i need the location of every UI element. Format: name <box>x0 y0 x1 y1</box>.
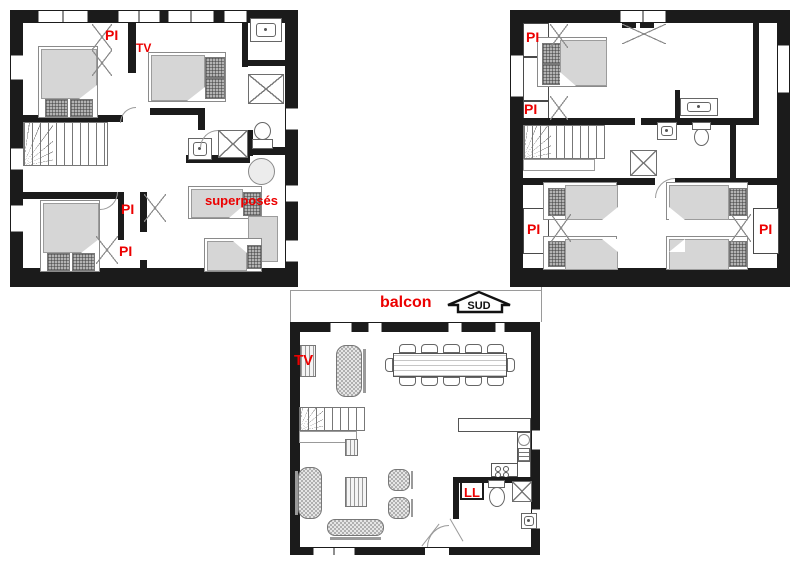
folding-door-icon <box>551 214 571 242</box>
sofa <box>336 345 362 397</box>
floorplan-canvas: PI TV PI PI superposés <box>0 0 800 566</box>
chair <box>399 344 416 353</box>
armchair <box>388 497 410 519</box>
sofa <box>298 467 322 519</box>
washbasin <box>657 122 677 140</box>
window <box>495 323 505 332</box>
stair-landing <box>523 159 595 171</box>
closet-label: PI <box>119 244 132 258</box>
pillow <box>729 188 747 216</box>
mattress <box>565 185 618 220</box>
tv-label: TV <box>294 353 313 368</box>
stair-winder <box>523 125 551 159</box>
folding-door-icon <box>550 24 568 48</box>
toilet <box>487 480 505 506</box>
floor-plan-upper-right: PI PI PI PI <box>510 10 790 287</box>
south-direction-arrow: SUD <box>446 289 512 317</box>
wall <box>242 60 285 66</box>
sheet-fold <box>79 85 97 99</box>
kitchen-sink <box>518 434 530 446</box>
sofa-back <box>363 349 366 393</box>
sheet-fold <box>669 207 685 220</box>
entry-door-gap <box>425 548 449 555</box>
window <box>643 11 666 22</box>
window <box>168 11 191 22</box>
door-arc <box>120 107 136 123</box>
sheet-fold <box>233 241 247 253</box>
closet-label: PI <box>121 202 134 216</box>
wall <box>128 23 136 73</box>
window <box>778 45 789 93</box>
floor-plan-upper-left: PI TV PI PI superposés <box>10 10 298 287</box>
south-arrow-graphic: SUD <box>446 289 512 317</box>
wall <box>523 118 635 125</box>
toilet-bowl <box>254 122 271 140</box>
window <box>286 185 298 202</box>
chair <box>465 377 482 386</box>
bunk-bed-lower <box>204 238 262 272</box>
window <box>313 548 334 555</box>
chair <box>385 358 393 372</box>
mattress <box>207 241 247 271</box>
chair <box>487 377 504 386</box>
door-arc <box>200 130 218 148</box>
window <box>11 148 23 170</box>
double-bed <box>40 200 100 272</box>
tap <box>264 28 267 31</box>
washing-machine: LL <box>460 481 484 500</box>
stair-winder <box>23 122 53 166</box>
double-bed <box>148 52 226 102</box>
window <box>63 11 88 22</box>
armchair <box>388 469 410 491</box>
window <box>11 205 23 232</box>
svg-text:SUD: SUD <box>467 300 490 312</box>
shower <box>512 481 532 502</box>
sofa-back <box>295 471 298 515</box>
round-basin <box>248 158 275 185</box>
dish-drainer <box>518 448 530 462</box>
chair <box>421 344 438 353</box>
door-leaf <box>450 518 464 541</box>
tap <box>527 519 530 522</box>
wall <box>753 23 759 118</box>
toilet-tank <box>252 139 273 149</box>
window <box>330 323 352 332</box>
closet-label: PI <box>526 30 539 44</box>
floor-plan-ground: balcon SUD TV <box>290 287 542 555</box>
folding-door-icon <box>144 194 166 222</box>
wall <box>198 108 205 130</box>
stove <box>491 463 518 477</box>
toilet <box>692 122 710 146</box>
double-bed <box>38 46 98 118</box>
kitchen-counter <box>458 418 531 432</box>
wall <box>510 268 790 287</box>
balcony-label: balcon <box>380 295 432 311</box>
window <box>620 11 643 22</box>
armchair-back <box>411 499 413 517</box>
window <box>139 11 160 22</box>
sheet-fold <box>669 239 685 252</box>
pillow <box>47 253 70 271</box>
window <box>368 323 382 332</box>
door-arc <box>100 192 118 210</box>
bunk-beds-label: superposés <box>205 194 278 207</box>
window <box>334 548 355 555</box>
chair <box>443 344 460 353</box>
mattress <box>669 239 729 270</box>
window <box>118 11 139 22</box>
chair <box>465 344 482 353</box>
side-table <box>345 439 358 456</box>
folding-door-icon <box>550 96 568 120</box>
toilet-bowl <box>489 487 505 507</box>
window <box>286 108 298 130</box>
sheet-fold <box>560 72 576 86</box>
window <box>448 323 462 332</box>
sheet-fold <box>187 87 205 101</box>
chair <box>421 377 438 386</box>
pillow <box>542 64 561 85</box>
toilet-bowl <box>694 128 709 146</box>
closet-label: PI <box>524 102 537 116</box>
pillow <box>45 99 68 117</box>
mattress <box>43 203 99 253</box>
wall <box>140 260 147 268</box>
folding-door-icon <box>92 50 112 76</box>
door-arc <box>427 525 449 547</box>
pillow <box>205 78 225 99</box>
washing-machine-label: LL <box>464 486 480 499</box>
wall <box>285 10 298 268</box>
closet-label: PI <box>105 28 118 42</box>
tap <box>697 105 700 108</box>
dining-table <box>393 353 507 377</box>
balcony-edge <box>541 287 542 322</box>
shower <box>248 74 284 104</box>
pillow <box>548 188 566 216</box>
pillow <box>72 253 95 271</box>
armchair-back <box>411 471 413 489</box>
pillow <box>205 57 225 78</box>
washbasin <box>521 513 537 529</box>
chair <box>507 358 515 372</box>
stair-winder <box>299 407 323 431</box>
closet-label: PI <box>527 222 540 236</box>
tap <box>665 129 668 132</box>
door-arc <box>655 178 675 198</box>
mattress <box>41 49 97 99</box>
washbasin <box>680 98 718 116</box>
toilet-tank <box>692 122 711 130</box>
folding-door-icon <box>96 236 118 264</box>
window <box>38 11 63 22</box>
pillow <box>247 245 262 269</box>
shower <box>218 130 248 158</box>
wall <box>453 483 459 519</box>
window <box>532 430 540 450</box>
folding-door-icon <box>731 214 751 242</box>
washbasin <box>250 18 282 42</box>
mattress <box>151 55 205 101</box>
coffee-table <box>345 477 367 507</box>
mattress <box>565 239 618 270</box>
window <box>286 240 298 262</box>
shower <box>630 150 657 176</box>
chair <box>399 377 416 386</box>
sofa <box>327 519 384 536</box>
pillow <box>729 241 747 267</box>
chair <box>487 344 504 353</box>
mattress <box>669 185 729 220</box>
double-bed <box>537 37 607 87</box>
toilet <box>252 122 272 148</box>
tv-label: TV <box>136 42 151 54</box>
pillow <box>548 241 566 267</box>
balcony-edge <box>290 290 291 322</box>
window <box>511 55 523 97</box>
closet-label: PI <box>759 222 772 236</box>
chair <box>443 377 460 386</box>
sheet-fold <box>602 207 618 220</box>
window <box>224 11 247 22</box>
sofa-back <box>330 537 381 540</box>
wall <box>510 10 523 277</box>
window <box>191 11 214 22</box>
window-swing-icon <box>622 24 666 44</box>
window <box>11 55 23 80</box>
wall <box>150 108 200 115</box>
sheet-fold <box>602 239 618 252</box>
pillow <box>70 99 93 117</box>
